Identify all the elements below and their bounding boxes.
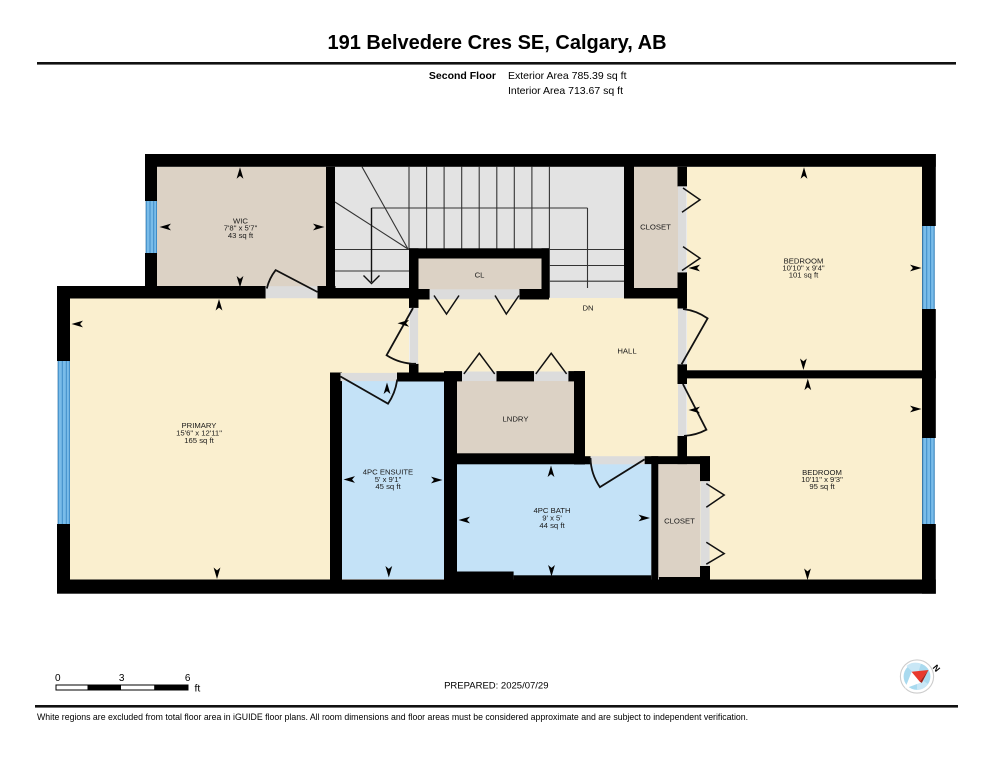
svg-text:CLOSET: CLOSET [664, 517, 695, 526]
svg-text:Exterior Area 785.39 sq ft: Exterior Area 785.39 sq ft [508, 70, 627, 82]
svg-text:3: 3 [119, 673, 125, 684]
svg-text:165 sq ft: 165 sq ft [184, 436, 214, 445]
svg-text:Second Floor: Second Floor [429, 70, 496, 82]
svg-text:LNDRY: LNDRY [503, 415, 529, 424]
svg-text:44 sq ft: 44 sq ft [539, 521, 565, 530]
svg-text:White regions are excluded fro: White regions are excluded from total fl… [37, 712, 748, 722]
svg-text:95 sq ft: 95 sq ft [809, 482, 835, 491]
svg-text:101 sq ft: 101 sq ft [789, 270, 819, 279]
svg-text:43 sq ft: 43 sq ft [228, 231, 254, 240]
svg-text:Interior Area 713.67 sq ft: Interior Area 713.67 sq ft [508, 85, 623, 97]
svg-text:PREPARED: 2025/07/29: PREPARED: 2025/07/29 [444, 681, 548, 692]
svg-text:HALL: HALL [617, 347, 637, 356]
svg-text:CL: CL [475, 271, 486, 280]
svg-text:45 sq ft: 45 sq ft [375, 482, 401, 491]
svg-text:ft: ft [195, 683, 201, 695]
svg-text:CLOSET: CLOSET [640, 223, 671, 232]
svg-text:191 Belvedere Cres SE, Calgary: 191 Belvedere Cres SE, Calgary, AB [327, 32, 666, 54]
svg-text:0: 0 [55, 673, 61, 684]
svg-text:DN: DN [582, 304, 593, 313]
svg-text:6: 6 [185, 673, 191, 684]
